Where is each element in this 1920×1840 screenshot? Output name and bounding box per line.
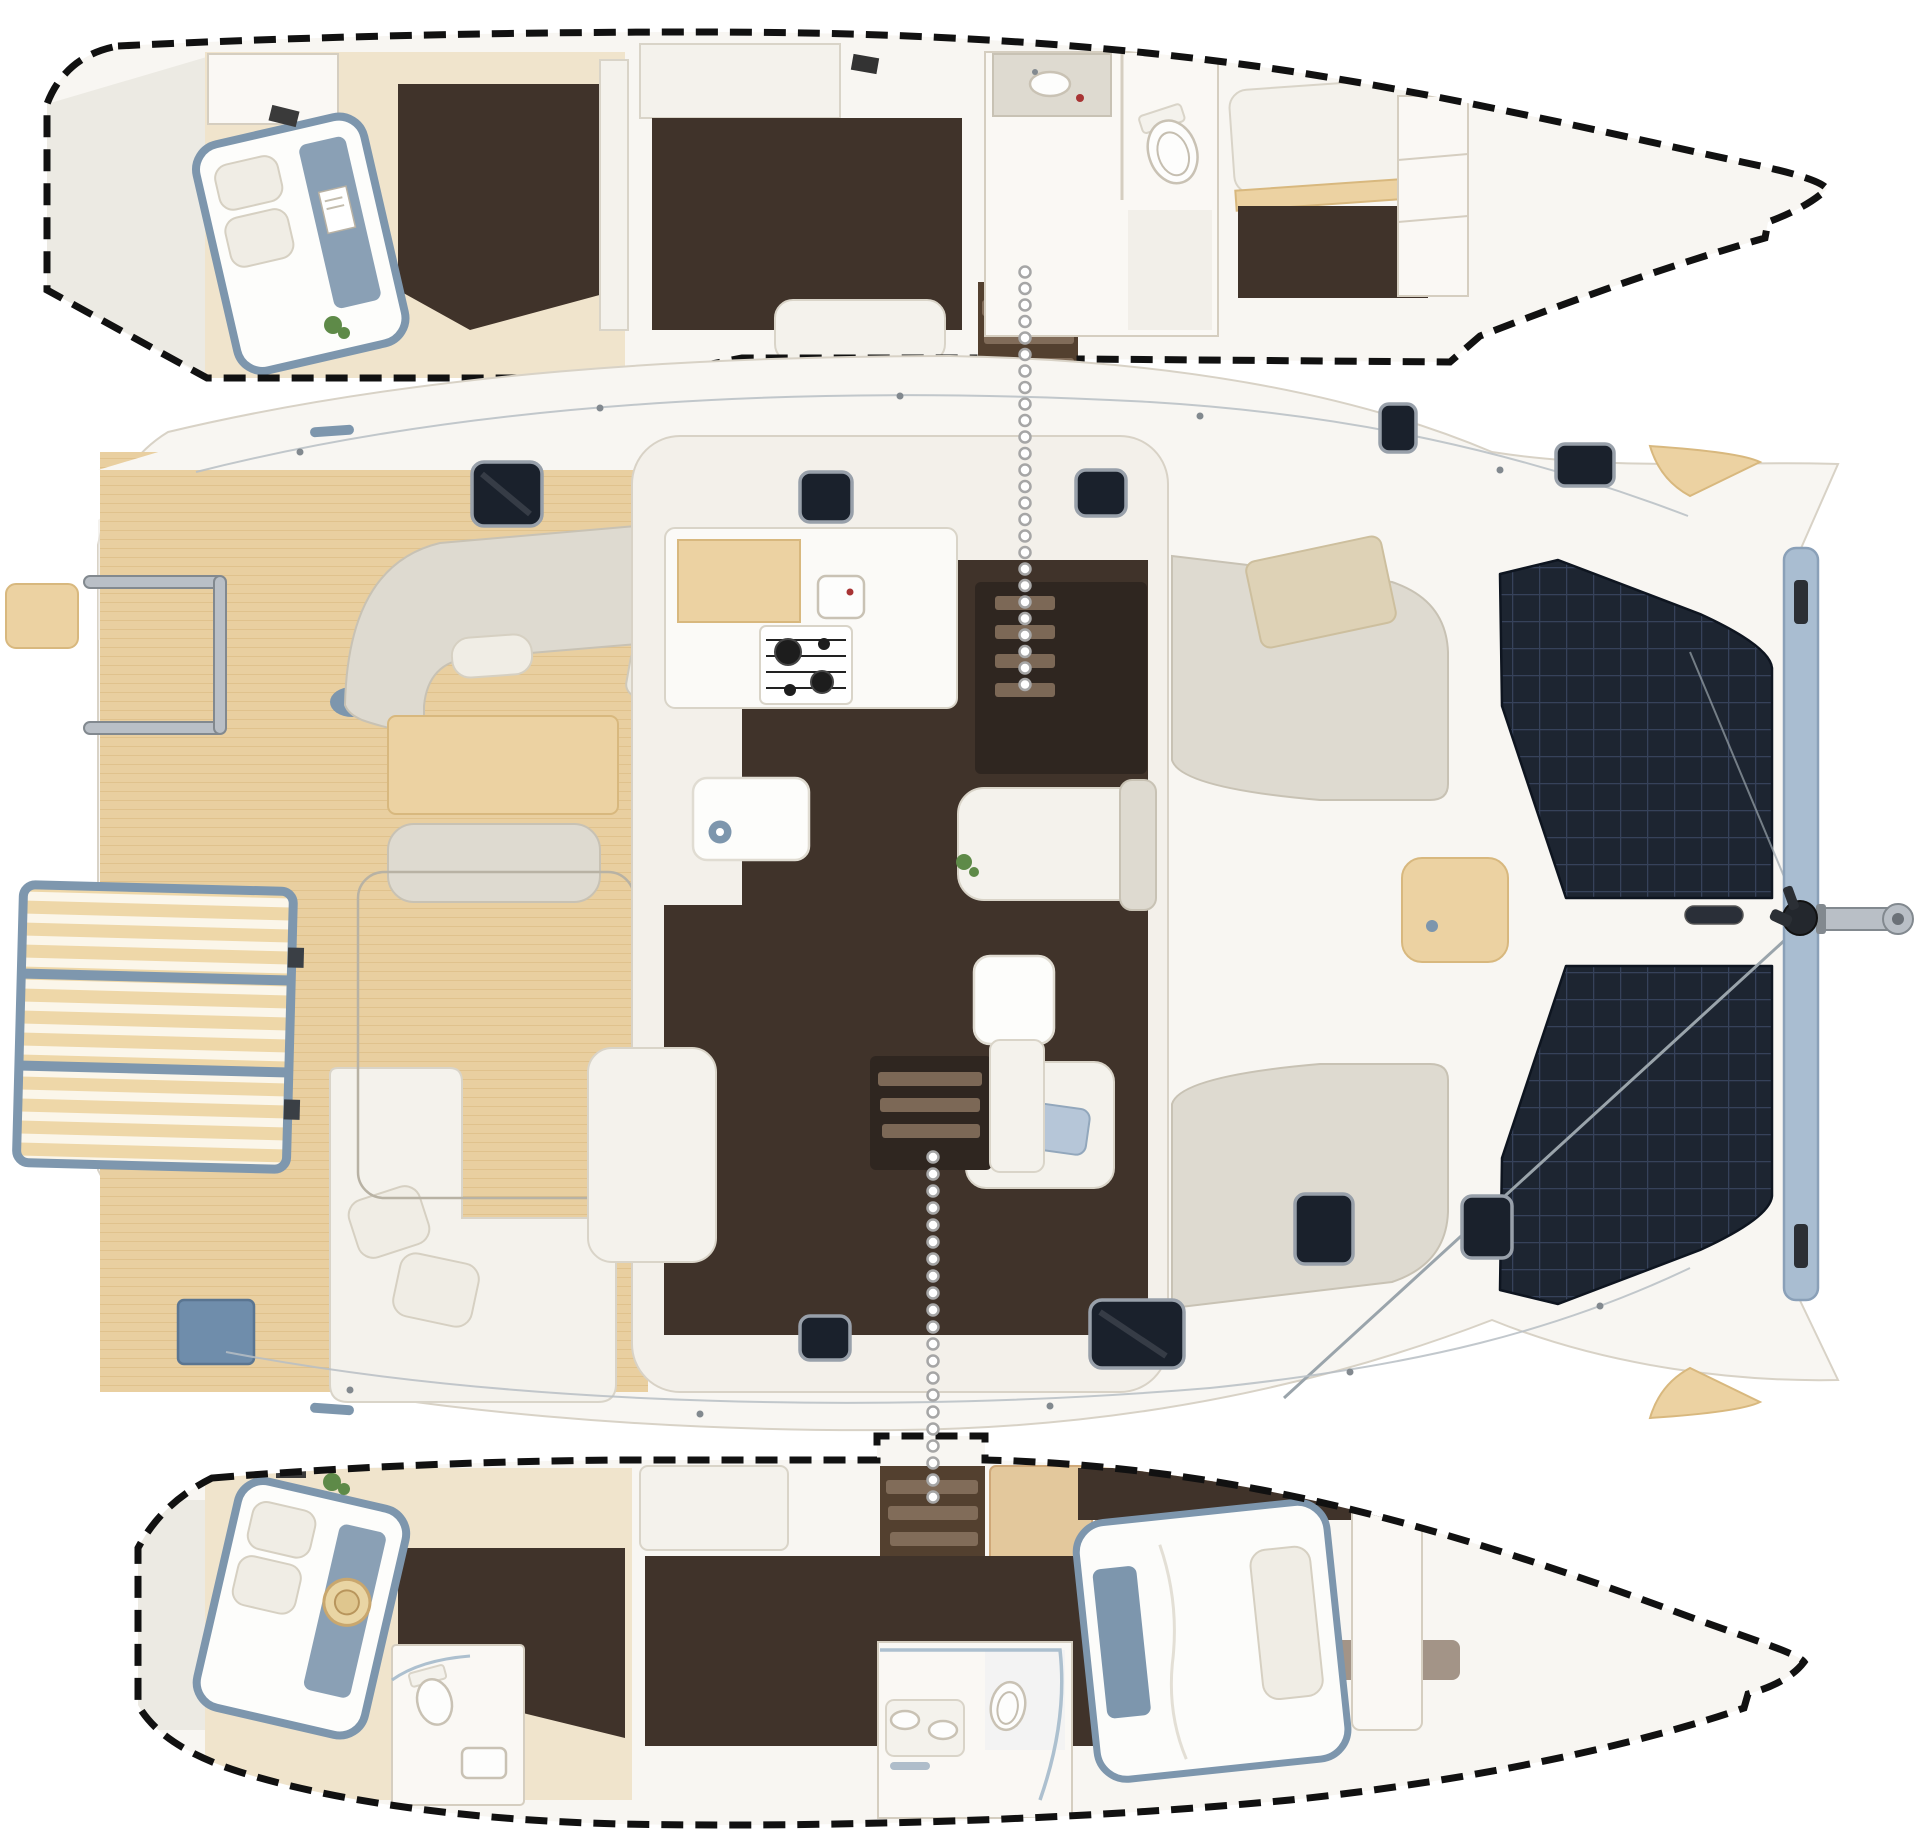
connector-dot bbox=[928, 1203, 939, 1214]
cabin-dark-floor bbox=[398, 84, 618, 330]
towel-rail bbox=[890, 1762, 930, 1770]
connector-dot bbox=[928, 1458, 939, 1469]
connector-dot bbox=[1020, 663, 1031, 674]
salon-galley bbox=[665, 528, 957, 708]
port-aft-cabin bbox=[191, 52, 628, 378]
connector-dot bbox=[1020, 481, 1031, 492]
red-accent bbox=[1076, 94, 1084, 102]
beam-fitting bbox=[1794, 580, 1808, 624]
companionway-down bbox=[870, 1040, 1044, 1172]
connector-dot bbox=[1020, 267, 1031, 278]
seat-pad bbox=[451, 633, 534, 678]
sink bbox=[462, 1748, 506, 1778]
connector-dot bbox=[1020, 465, 1031, 476]
starboard-aft-bathroom bbox=[392, 1645, 524, 1805]
sink bbox=[1030, 72, 1070, 96]
plant bbox=[956, 854, 972, 870]
deck-handle bbox=[1685, 906, 1743, 924]
connector-dot bbox=[1020, 448, 1031, 459]
connector-dot bbox=[928, 1424, 939, 1435]
double-bed bbox=[1073, 1499, 1351, 1782]
connector-dot bbox=[1020, 366, 1031, 377]
plant bbox=[338, 1483, 350, 1495]
connector-dot bbox=[928, 1322, 939, 1333]
connector-dot bbox=[928, 1475, 939, 1486]
connector-dot bbox=[928, 1407, 939, 1418]
catamaran-floor-plan bbox=[0, 0, 1920, 1840]
port-forward-cabin bbox=[1228, 77, 1468, 298]
chaise-back bbox=[1120, 780, 1156, 910]
connector-dot bbox=[1020, 564, 1031, 575]
connector-dot bbox=[1020, 382, 1031, 393]
vanity-desk bbox=[640, 44, 840, 118]
connector-dot bbox=[928, 1220, 939, 1231]
connector-dot bbox=[1020, 399, 1031, 410]
swim-platform bbox=[16, 885, 305, 1170]
connector-dot bbox=[928, 1271, 939, 1282]
galley-worktop bbox=[678, 540, 800, 622]
boarding-step-pad bbox=[6, 584, 78, 648]
connector-dot bbox=[1020, 679, 1031, 690]
galley-sink bbox=[818, 576, 864, 618]
faucet bbox=[1032, 69, 1038, 75]
connector-dot bbox=[928, 1339, 939, 1350]
connector-dot bbox=[1020, 349, 1031, 360]
connector-dot bbox=[928, 1237, 939, 1248]
island-table bbox=[693, 778, 809, 860]
connector-dot bbox=[1020, 316, 1031, 327]
cockpit-table bbox=[388, 716, 618, 814]
port-bathroom bbox=[985, 52, 1218, 336]
sink bbox=[929, 1721, 957, 1739]
connector-dot bbox=[1020, 547, 1031, 558]
foredeck-table bbox=[1402, 858, 1508, 962]
connector-dot bbox=[928, 1169, 939, 1180]
connector-dot bbox=[928, 1254, 939, 1265]
corridor-floor bbox=[652, 118, 962, 330]
connector-dot bbox=[1020, 300, 1031, 311]
closet bbox=[1398, 96, 1468, 296]
cockpit-bench bbox=[388, 824, 600, 902]
sink bbox=[891, 1711, 919, 1729]
connector-dot bbox=[1020, 613, 1031, 624]
salon-aft-bench bbox=[588, 1048, 716, 1262]
connector-dot bbox=[1020, 597, 1031, 608]
cabinet bbox=[640, 1466, 788, 1550]
starboard-forward-bathroom bbox=[878, 1642, 1072, 1818]
platform-hinge bbox=[288, 947, 305, 967]
connector-dot bbox=[928, 1492, 939, 1503]
faucet-accent bbox=[847, 589, 854, 596]
shower-floor bbox=[1128, 210, 1212, 330]
connector-dot bbox=[1020, 283, 1031, 294]
salon-side-table bbox=[974, 956, 1054, 1044]
connector-dot bbox=[928, 1441, 939, 1452]
connector-dot bbox=[1020, 514, 1031, 525]
connector-dot bbox=[1020, 630, 1031, 641]
connector-dot bbox=[928, 1152, 939, 1163]
connector-dot bbox=[1020, 415, 1031, 426]
companionway-up bbox=[975, 582, 1147, 774]
starboard-companionway-link bbox=[928, 1152, 939, 1503]
galley-stove bbox=[760, 626, 852, 704]
connector-dot bbox=[928, 1356, 939, 1367]
connector-dot bbox=[928, 1373, 939, 1384]
connector-dot bbox=[928, 1305, 939, 1316]
beam-fitting bbox=[1794, 1224, 1808, 1268]
hull-side-locker bbox=[600, 60, 628, 330]
closet bbox=[1352, 1502, 1422, 1730]
plant bbox=[969, 867, 979, 877]
salon bbox=[588, 436, 1168, 1392]
connector-dot bbox=[1020, 531, 1031, 542]
connector-dot bbox=[1020, 333, 1031, 344]
seat bbox=[775, 300, 945, 362]
connector-dot bbox=[1020, 498, 1031, 509]
connector-dot bbox=[1020, 432, 1031, 443]
plant bbox=[338, 327, 350, 339]
connector-dot bbox=[1020, 646, 1031, 657]
connector-dot bbox=[1020, 580, 1031, 591]
connector-dot bbox=[928, 1390, 939, 1401]
connector-dot bbox=[928, 1288, 939, 1299]
main-deck bbox=[6, 356, 1913, 1430]
platform-hinge bbox=[284, 1099, 301, 1119]
connector-dot bbox=[928, 1186, 939, 1197]
